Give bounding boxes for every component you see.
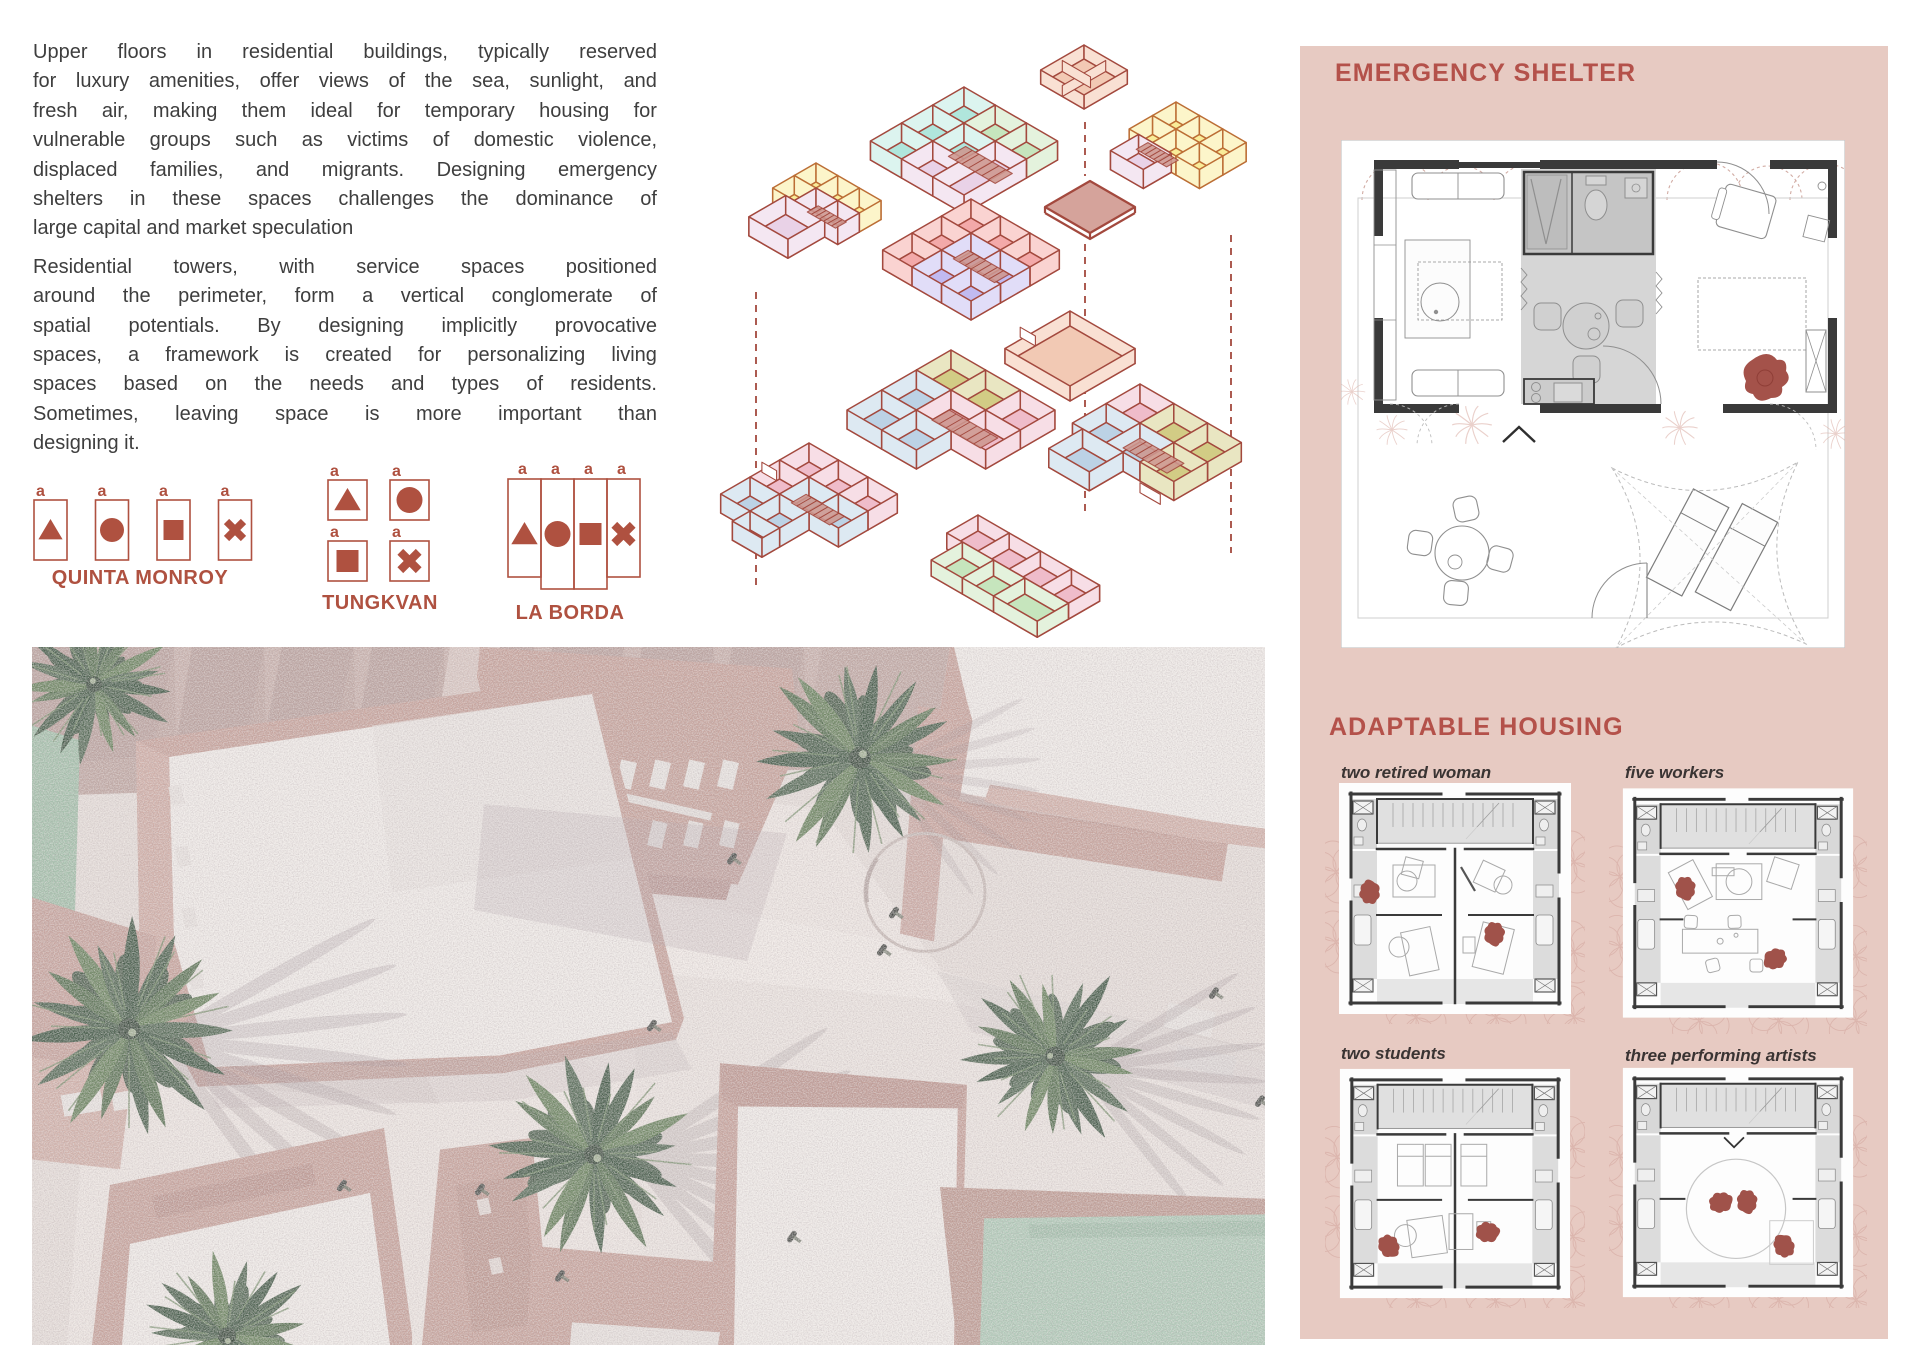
svg-text:a: a [584,461,593,478]
svg-text:QUINTA MONROY: QUINTA MONROY [52,567,229,589]
svg-text:a: a [518,461,527,478]
svg-text:a: a [221,483,230,500]
svg-text:a: a [159,483,168,500]
svg-text:a: a [330,463,339,480]
svg-text:LA BORDA: LA BORDA [516,602,625,624]
svg-text:a: a [551,461,560,478]
svg-text:a: a [617,461,626,478]
svg-text:a: a [392,524,401,541]
svg-text:TUNGKVAN: TUNGKVAN [322,592,438,614]
svg-text:a: a [98,483,107,500]
svg-text:a: a [36,483,45,500]
svg-text:a: a [392,463,401,480]
svg-text:a: a [330,524,339,541]
